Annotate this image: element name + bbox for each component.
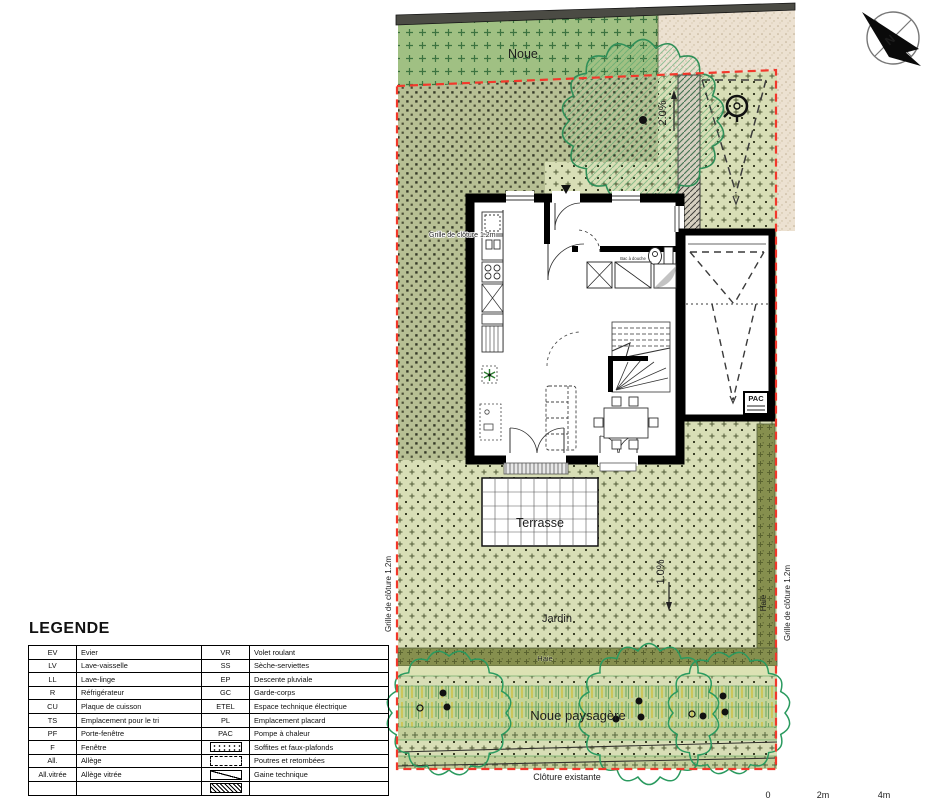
scale-2m: 2m <box>817 790 830 800</box>
legend-row: EV Evier VR Volet roulant <box>29 646 389 660</box>
legend-desc: Lave-linge <box>77 673 202 687</box>
legend-row: All. Allège Poutres et retombées <box>29 754 389 768</box>
legend-desc: Poutres et retombées <box>250 754 389 768</box>
legend-desc: Soffites et faux-plafonds <box>250 741 389 755</box>
legend-desc: Allège vitrée <box>77 768 202 782</box>
legend-abbr: TS <box>29 713 77 727</box>
legend-desc: Descente pluviale <box>250 673 389 687</box>
legend-abbr: All.vitrée <box>29 768 77 782</box>
legend-abbr: R <box>29 686 77 700</box>
legend-desc <box>250 781 389 795</box>
legend-icon-cell <box>202 781 250 795</box>
fence-label-left: Grille de clôture 1.2m <box>384 556 393 632</box>
site-plan-sheet: PAC Noue 2.0% Grille de clôture 1.2m Ter… <box>0 0 930 800</box>
noue-label: Noue <box>508 47 538 61</box>
legend-desc: Réfrigérateur <box>77 686 202 700</box>
hatched-icon <box>210 783 242 793</box>
legend-abbr: VR <box>202 646 250 660</box>
legend-abbr: ETEL <box>202 700 250 714</box>
legend-abbr: SS <box>202 659 250 673</box>
legend-row: CU Plaque de cuisson ETEL Espace techniq… <box>29 700 389 714</box>
legend-abbr: GC <box>202 686 250 700</box>
haie-band-label: Haie <box>537 654 552 663</box>
hedge-strip-right <box>757 424 775 648</box>
hedge-band <box>398 648 777 666</box>
legend-desc: Lave-vaisselle <box>77 659 202 673</box>
legend-desc: Plaque de cuisson <box>77 700 202 714</box>
legend-icon-cell <box>202 768 250 782</box>
legend-row <box>29 781 389 795</box>
legend-desc <box>77 781 202 795</box>
cloture-label: Clôture existante <box>533 772 601 782</box>
door-sill <box>504 463 568 474</box>
staircase <box>608 322 670 392</box>
garage-plan: PAC <box>682 232 772 418</box>
jardin-label: Jardin <box>542 613 572 625</box>
legend-desc: Gaine technique <box>250 768 389 782</box>
legend-desc: Fenêtre <box>77 741 202 755</box>
legend-abbr: PL <box>202 713 250 727</box>
legend-desc: Porte-fenêtre <box>77 727 202 741</box>
terrace <box>482 478 598 546</box>
legend-row: PF Porte-fenêtre PAC Pompe à chaleur <box>29 727 389 741</box>
scale-4m: 4m <box>878 790 891 800</box>
terrasse-label: Terrasse <box>516 516 564 530</box>
slope-bottom-label: 1.0% <box>655 559 667 584</box>
legend-icon-cell <box>202 741 250 755</box>
legend-abbr: F <box>29 741 77 755</box>
legend-row: LV Lave-vaisselle SS Sèche-serviettes <box>29 659 389 673</box>
legend-desc: Espace technique électrique <box>250 700 389 714</box>
legend-desc: Pompe à chaleur <box>250 727 389 741</box>
legend-row: All.vitrée Allège vitrée Gaine technique <box>29 768 389 782</box>
legend-abbr <box>29 781 77 795</box>
legend-abbr: LL <box>29 673 77 687</box>
legend-abbr: All. <box>29 754 77 768</box>
scale-zero: 0 <box>765 790 770 800</box>
legend-row: LL Lave-linge EP Descente pluviale <box>29 673 389 687</box>
legend-row: R Réfrigérateur GC Garde-corps <box>29 686 389 700</box>
legend-desc: Evier <box>77 646 202 660</box>
svg-text:PAC: PAC <box>748 394 764 403</box>
haie-label-right: Haie <box>759 594 768 611</box>
slope-top-label: 2.0% <box>657 100 669 125</box>
legend-row: F Fenêtre Soffites et faux-plafonds <box>29 741 389 755</box>
shower-label: Bac à douche <box>620 256 646 261</box>
noue-paysagere-label: Noue paysagère <box>530 708 625 723</box>
tree-trunk <box>639 116 647 124</box>
duct-diagonal-icon <box>210 770 242 780</box>
heat-pump-unit: PAC <box>744 392 768 414</box>
house-plan <box>470 185 684 474</box>
soffits-pattern-icon <box>210 742 242 752</box>
legend-desc: Emplacement placard <box>250 713 389 727</box>
legend-abbr: LV <box>29 659 77 673</box>
legend-desc: Allège <box>77 754 202 768</box>
legend-abbr: PAC <box>202 727 250 741</box>
legend-desc: Sèche-serviettes <box>250 659 389 673</box>
beam-dashed-icon <box>210 756 242 766</box>
legend-abbr: PF <box>29 727 77 741</box>
fence-label-top: Grille de clôture 1.2m <box>429 232 496 239</box>
legend-row: TS Emplacement pour le tri PL Emplacemen… <box>29 713 389 727</box>
legend-icon-cell <box>202 754 250 768</box>
legend-desc: Emplacement pour le tri <box>77 713 202 727</box>
legend-panel: LEGENDE EV Evier VR Volet roulant LV Lav… <box>28 620 360 796</box>
legend-desc: Garde-corps <box>250 686 389 700</box>
fence-label-right: Grille de clôture 1.2m <box>783 565 792 641</box>
legend-desc: Volet roulant <box>250 646 389 660</box>
legend-abbr: EP <box>202 673 250 687</box>
legend-title: LEGENDE <box>29 620 360 638</box>
legend-abbr: EV <box>29 646 77 660</box>
legend-abbr: CU <box>29 700 77 714</box>
legend-table: EV Evier VR Volet roulant LV Lave-vaisse… <box>28 645 389 796</box>
